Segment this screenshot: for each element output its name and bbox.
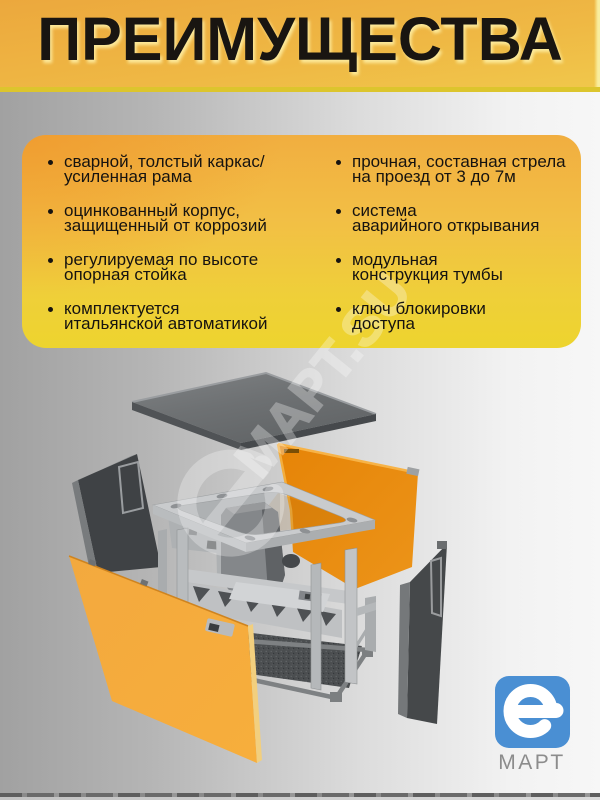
- svg-text:МАРТ: МАРТ: [498, 751, 565, 774]
